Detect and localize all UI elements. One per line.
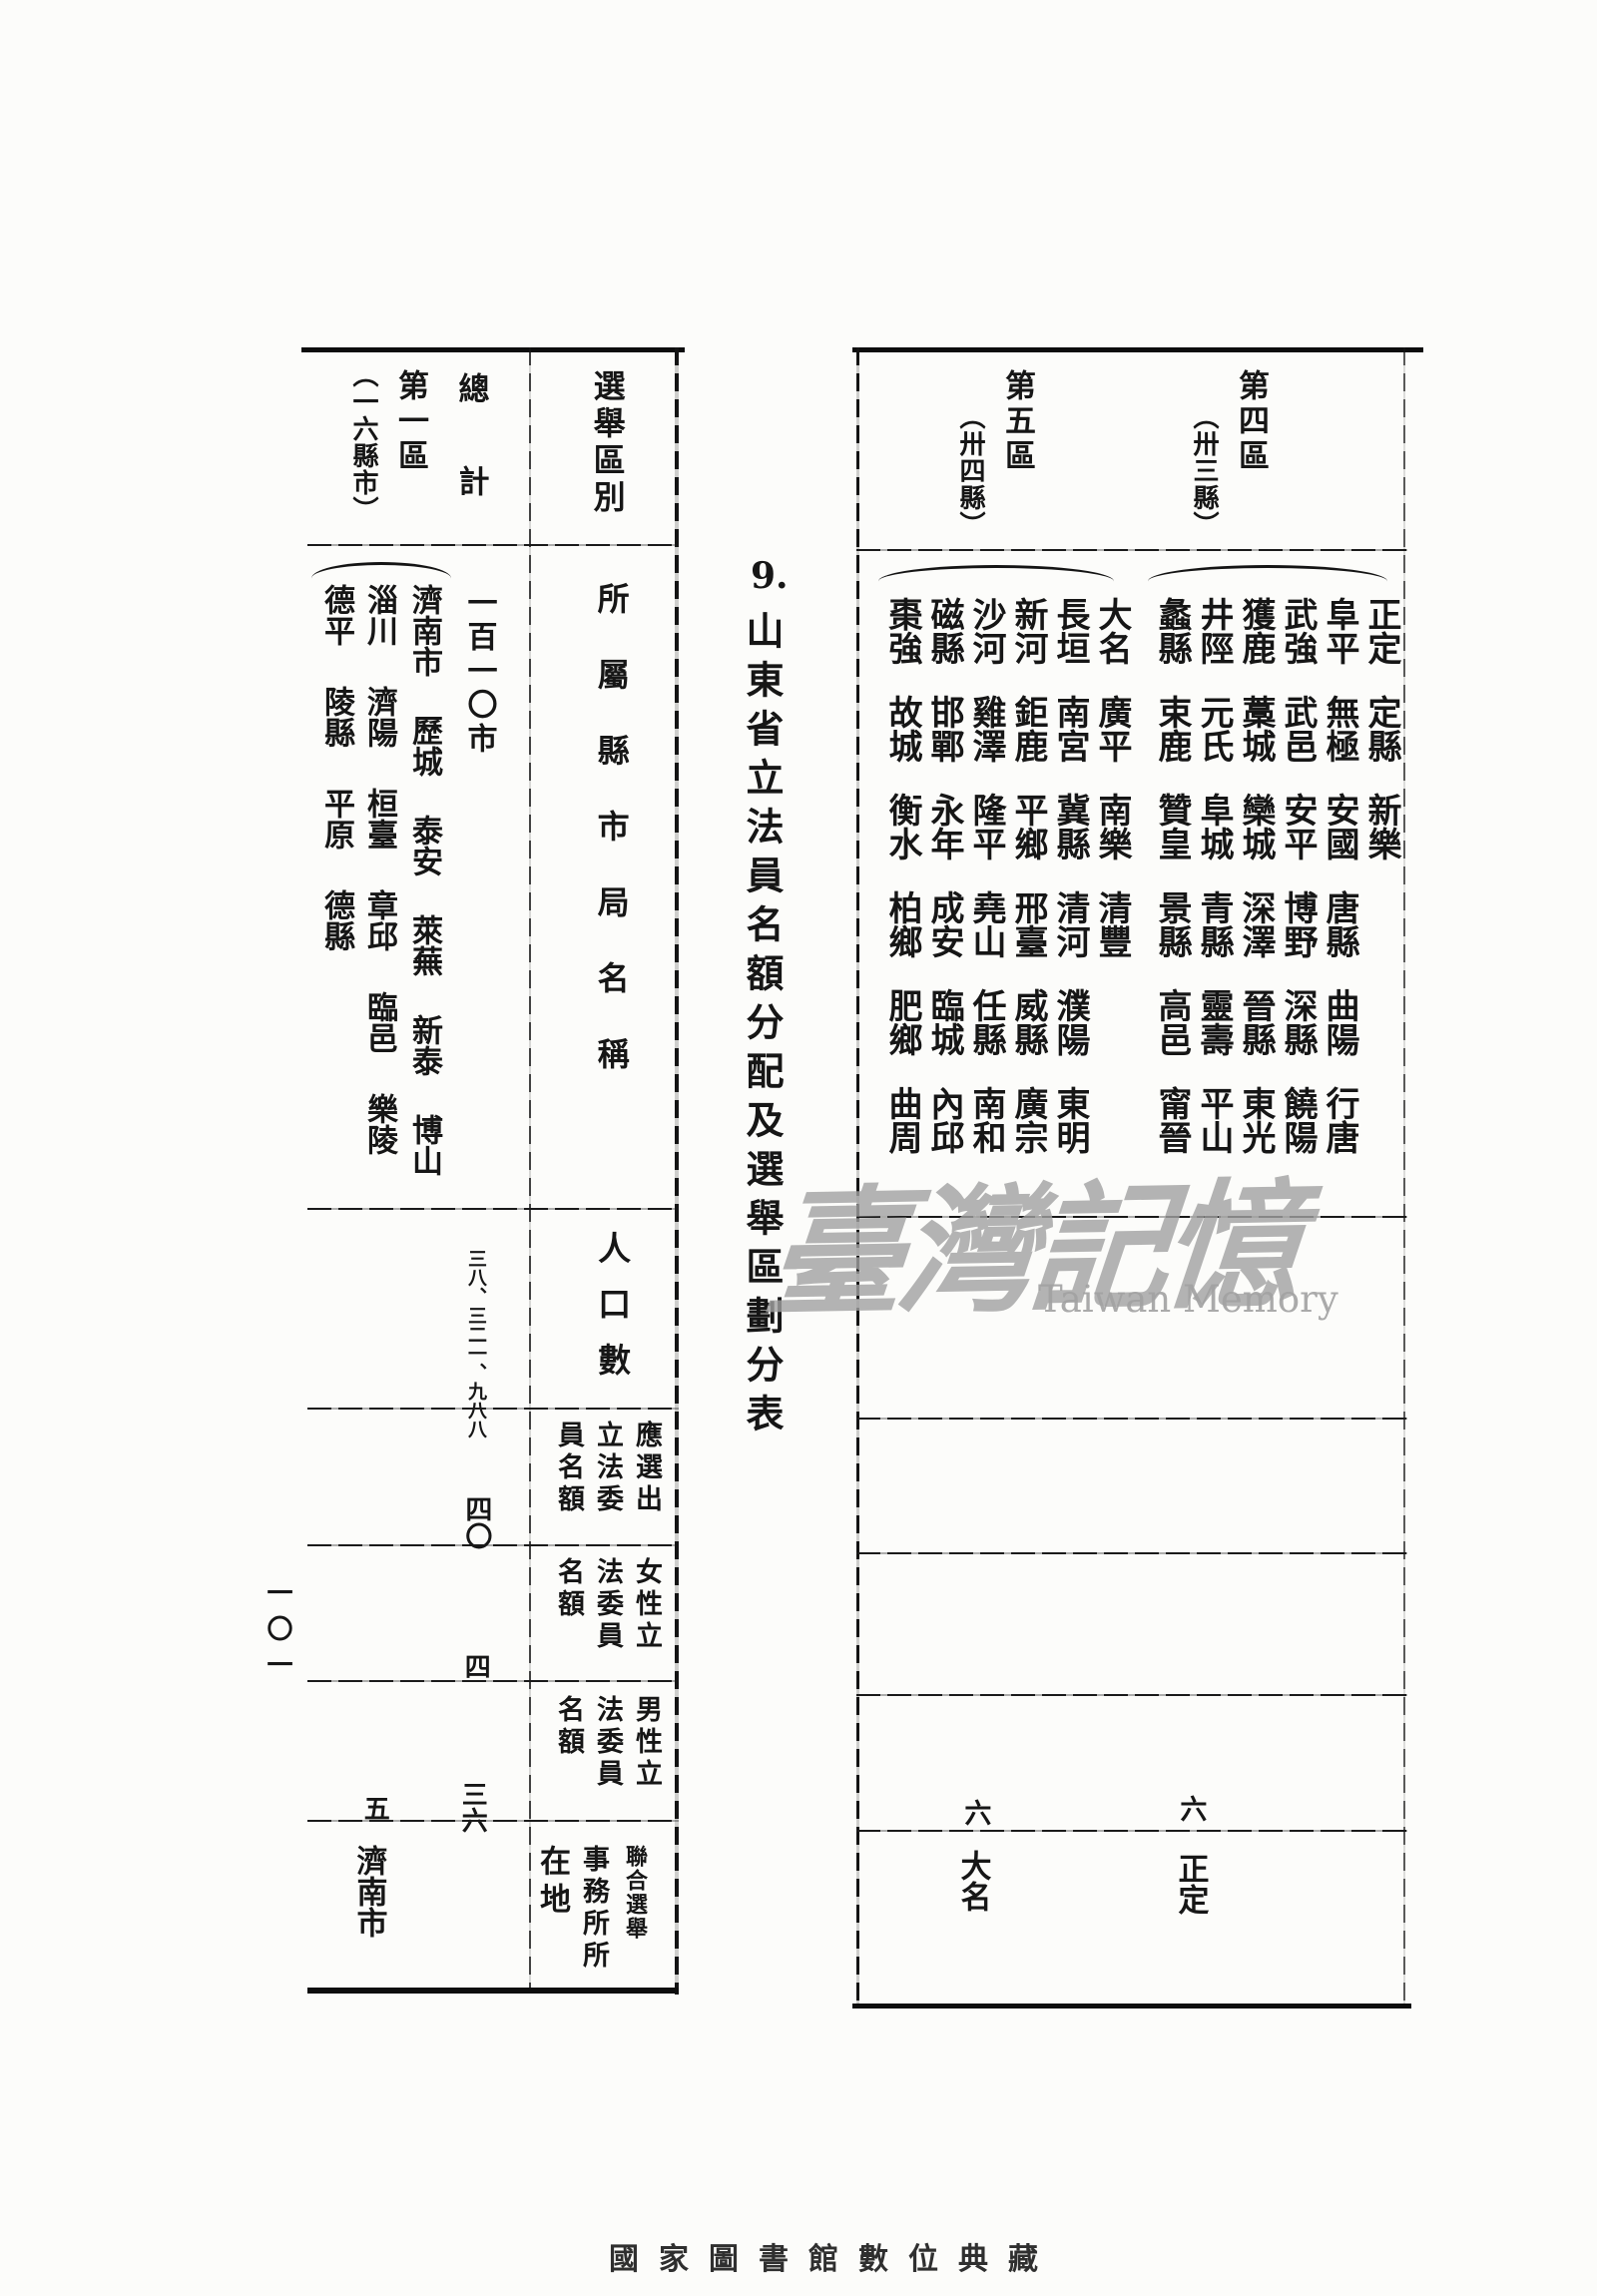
table-bottom-border: [852, 2004, 1411, 2009]
county-name: 曲周: [880, 1086, 919, 1158]
district-5-name: 第五區: [995, 369, 1040, 538]
table-top-border: [301, 347, 685, 352]
county-name: 雞澤: [964, 695, 1003, 767]
header-district-label: 選舉區別: [590, 369, 624, 517]
district-4-brace: [1148, 565, 1387, 583]
county-name: 成安: [922, 890, 961, 962]
row-divider: [856, 1216, 1407, 1218]
district-5-county-grid: 大名長垣新河沙河磁縣棗強廣平南宮鉅鹿雞澤邯鄲故城南樂冀縣平鄉隆平永年衡水清豐清河…: [873, 597, 1129, 1184]
district-4-header: 第四區 （卅三縣）: [1186, 369, 1274, 538]
row-label-female-quota: 女性立法委員名額: [551, 1557, 660, 1653]
county-name: 男性立: [629, 1695, 660, 1791]
county-name: 德縣: [311, 889, 352, 951]
county-name: 行唐: [1318, 1086, 1356, 1158]
county-name: 衡水: [880, 793, 919, 864]
county-name: 隆平: [964, 793, 1003, 864]
header-divider: [856, 549, 1407, 551]
county-name: 磁縣: [922, 597, 961, 669]
district-1-office-location: 濟南市: [352, 1845, 385, 1938]
county-name: 博野: [1276, 890, 1315, 962]
district-4-name: 第四區: [1229, 369, 1274, 538]
total-quota-value: 四〇: [461, 1495, 489, 1549]
county-name: 高邑: [1150, 988, 1189, 1060]
county-name: 邯鄲: [922, 695, 961, 767]
county-name: 法委員: [590, 1557, 621, 1653]
county-name: 景縣: [1150, 890, 1189, 962]
county-name: 武邑: [1276, 695, 1315, 767]
county-band: 廣平南宮鉅鹿雞澤邯鄲故城: [873, 695, 1129, 767]
county-name: 鉅鹿: [1006, 695, 1045, 767]
district-1-county-count: （一六縣市）: [345, 361, 382, 523]
county-name: 棗強: [880, 597, 919, 669]
county-name: 永年: [922, 793, 961, 864]
county-name: 蠡縣: [1150, 597, 1189, 669]
county-name: 廣平: [1090, 695, 1129, 767]
county-name: 淄川: [354, 584, 395, 646]
county-name: 臨城: [922, 988, 961, 1060]
county-name: 威縣: [1006, 988, 1045, 1060]
district-4-office-location: 正定: [1174, 1853, 1207, 1915]
county-name: 正定: [1359, 597, 1398, 669]
district-1-brace: [311, 562, 451, 580]
district-5-header: 第五區 （卅四縣）: [952, 369, 1040, 538]
district-1-counties-col-right: 濟南市歷城泰安萊蕪新泰博山: [399, 584, 440, 1176]
row-divider: [856, 1830, 1407, 1832]
table-right-border: [675, 347, 679, 1995]
table-top-border: [852, 347, 1423, 352]
table-left-border: [856, 347, 859, 2009]
county-band: 南樂冀縣平鄉隆平永年衡水: [873, 793, 1129, 864]
county-name: 應選出: [629, 1421, 660, 1516]
county-name: 聯合選舉: [615, 1845, 646, 1973]
county-name: 新樂: [1359, 793, 1398, 864]
row-divider: [307, 1408, 679, 1410]
county-name: 阜城: [1192, 793, 1231, 864]
county-name: 欒城: [1234, 793, 1273, 864]
district-table-right: 第五區 （卅四縣） 第四區 （卅三縣） 大名長垣新河沙河磁縣棗強廣平南宮鉅鹿雞澤…: [856, 347, 1407, 2009]
county-name: 晉縣: [1234, 988, 1273, 1060]
county-name: 阜平: [1318, 597, 1356, 669]
county-name: 定縣: [1359, 695, 1398, 767]
county-name: 故城: [880, 695, 919, 767]
county-name: 獲鹿: [1234, 597, 1273, 669]
county-name: 安國: [1318, 793, 1356, 864]
row-label-names: 所屬縣市局名稱: [594, 582, 628, 1113]
county-name: 內邱: [922, 1086, 961, 1158]
district-4-male-quota: 六: [1176, 1795, 1204, 1822]
county-name: 名額: [551, 1557, 582, 1653]
district-1-header: 第一區 （一六縣市）: [345, 361, 433, 523]
total-names-value: 一百一〇市: [463, 587, 495, 757]
county-name: 名額: [551, 1695, 582, 1791]
county-name: 歷城: [399, 715, 440, 777]
county-name: 在地: [537, 1845, 568, 1973]
county-name: 大名: [1090, 597, 1129, 669]
county-name: 長垣: [1048, 597, 1087, 669]
district-1-counties-col-left: 德平陵縣平原德縣: [311, 584, 352, 951]
row-label-office-location: 聯合選舉事務所所在地: [537, 1845, 646, 1973]
row-divider: [856, 1418, 1407, 1420]
county-name: 青縣: [1192, 890, 1231, 962]
county-name: 束鹿: [1150, 695, 1189, 767]
county-name: 沙河: [964, 597, 1003, 669]
district-4-county-count: （卅三縣）: [1186, 403, 1223, 538]
county-name: 無極: [1318, 695, 1356, 767]
county-name: 井陘: [1192, 597, 1231, 669]
county-band: 行唐饒陽東光平山甯晉: [1143, 1086, 1398, 1158]
county-name: 平山: [1192, 1086, 1231, 1158]
county-band: 新樂安國安平欒城阜城贊皇: [1143, 793, 1398, 864]
row-divider: [307, 1208, 679, 1210]
county-name: 南樂: [1090, 793, 1129, 864]
county-name: 樂陵: [354, 1093, 395, 1155]
footer-library-credit: 國家圖書館數位典藏: [599, 2234, 1068, 2278]
page-number: 一〇一: [260, 1579, 296, 1687]
county-name: 新泰: [399, 1014, 440, 1076]
county-name: 陵縣: [311, 686, 352, 748]
header-total-column: 總計: [454, 372, 487, 558]
county-name: 邢臺: [1006, 890, 1045, 962]
scanned-page: 第五區 （卅四縣） 第四區 （卅三縣） 大名長垣新河沙河磁縣棗強廣平南宮鉅鹿雞澤…: [0, 0, 1597, 2296]
county-name: 靈壽: [1192, 988, 1231, 1060]
county-name: 法委員: [590, 1695, 621, 1791]
district-1-name: 第一區: [388, 369, 433, 523]
section-number: 9.: [751, 555, 789, 597]
header-divider: [307, 544, 679, 546]
row-divider: [856, 1552, 1407, 1554]
county-name: 廣宗: [1006, 1086, 1045, 1158]
county-band: 定縣無極武邑藁城元氏束鹿: [1143, 695, 1398, 767]
county-name: 員名額: [551, 1421, 582, 1516]
county-name: 濟南市: [399, 584, 440, 677]
county-name: 東光: [1234, 1086, 1273, 1158]
county-name: 泰安: [399, 815, 440, 876]
county-name: 平原: [311, 788, 352, 850]
county-name: 東明: [1048, 1086, 1087, 1158]
district-5-county-count: （卅四縣）: [952, 403, 989, 538]
county-name: 深澤: [1234, 890, 1273, 962]
county-name: 桓臺: [354, 788, 395, 850]
county-name: 平鄉: [1006, 793, 1045, 864]
county-name: 曲陽: [1318, 988, 1356, 1060]
page-title: 山東省立法員名額分配及選舉區劃分表: [743, 611, 781, 1442]
county-name: 柏鄉: [880, 890, 919, 962]
county-name: 藁城: [1234, 695, 1273, 767]
county-name: 博山: [399, 1114, 440, 1176]
county-band: 東明廣宗南和內邱曲周: [873, 1086, 1129, 1158]
county-name: 清河: [1048, 890, 1087, 962]
row-divider: [856, 1694, 1407, 1696]
row-divider: [307, 1680, 679, 1682]
county-name: 清豐: [1090, 890, 1129, 962]
county-name: 臨邑: [354, 991, 395, 1053]
row-label-male-quota: 男性立法委員名額: [551, 1695, 660, 1791]
county-name: 安平: [1276, 793, 1315, 864]
county-band: 唐縣博野深澤青縣景縣: [1143, 890, 1398, 962]
county-name: 任縣: [964, 988, 1003, 1060]
row-divider: [307, 1820, 679, 1822]
county-name: 德平: [311, 584, 352, 646]
total-male-value: 三六: [458, 1781, 485, 1833]
county-band: 正定阜平武強獲鹿井陘蠡縣: [1143, 597, 1398, 669]
total-population-value: 三八、三二一、九八八: [465, 1249, 485, 1438]
county-name: 唐縣: [1318, 890, 1356, 962]
district-4-county-grid: 正定阜平武強獲鹿井陘蠡縣定縣無極武邑藁城元氏束鹿新樂安國安平欒城阜城贊皇唐縣博野…: [1143, 597, 1398, 1184]
county-band: 清豐清河邢臺堯山成安柏鄉: [873, 890, 1129, 962]
district-5-office-location: 大名: [956, 1850, 989, 1912]
county-band: 曲陽深縣晉縣靈壽高邑: [1143, 988, 1398, 1060]
county-name: 濟陽: [354, 686, 395, 748]
county-name: 事務所所: [576, 1845, 607, 1973]
district-5-brace: [878, 565, 1114, 583]
shandong-table: 選舉區別 總計 第一區 （一六縣市） 所屬縣市局名稱 一百一〇市 濟南市歷城泰安…: [307, 347, 679, 1995]
row-label-population: 人口數: [594, 1231, 629, 1399]
district-1-counties-col-mid: 淄川濟陽桓臺章邱臨邑樂陵: [354, 584, 395, 1155]
county-name: 武強: [1276, 597, 1315, 669]
county-name: 新河: [1006, 597, 1045, 669]
row-divider: [307, 1544, 679, 1546]
county-name: 女性立: [629, 1557, 660, 1653]
county-name: 甯晉: [1150, 1086, 1189, 1158]
county-name: 深縣: [1276, 988, 1315, 1060]
county-name: 肥鄉: [880, 988, 919, 1060]
county-band: 濮陽威縣任縣臨城肥鄉: [873, 988, 1129, 1060]
district-5-male-quota: 六: [960, 1799, 988, 1826]
county-name: 章邱: [354, 889, 395, 951]
row-label-quota: 應選出立法委員名額: [551, 1421, 660, 1516]
county-band: 大名長垣新河沙河磁縣棗強: [873, 597, 1129, 669]
county-name: 南宮: [1048, 695, 1087, 767]
county-name: 堯山: [964, 890, 1003, 962]
table-right-border: [1403, 347, 1405, 2009]
county-name: 冀縣: [1048, 793, 1087, 864]
label-column-divider: [529, 347, 531, 1990]
county-name: 饒陽: [1276, 1086, 1315, 1158]
county-name: 萊蕪: [399, 914, 440, 976]
county-name: 濮陽: [1048, 988, 1087, 1060]
table-bottom-border: [307, 1988, 679, 1994]
county-name: 元氏: [1192, 695, 1231, 767]
county-name: 立法委: [590, 1421, 621, 1516]
county-name: 贊皇: [1150, 793, 1189, 864]
district-1-male-value: 五: [360, 1795, 387, 1821]
county-name: 南和: [964, 1086, 1003, 1158]
total-female-value: 四: [461, 1653, 488, 1679]
